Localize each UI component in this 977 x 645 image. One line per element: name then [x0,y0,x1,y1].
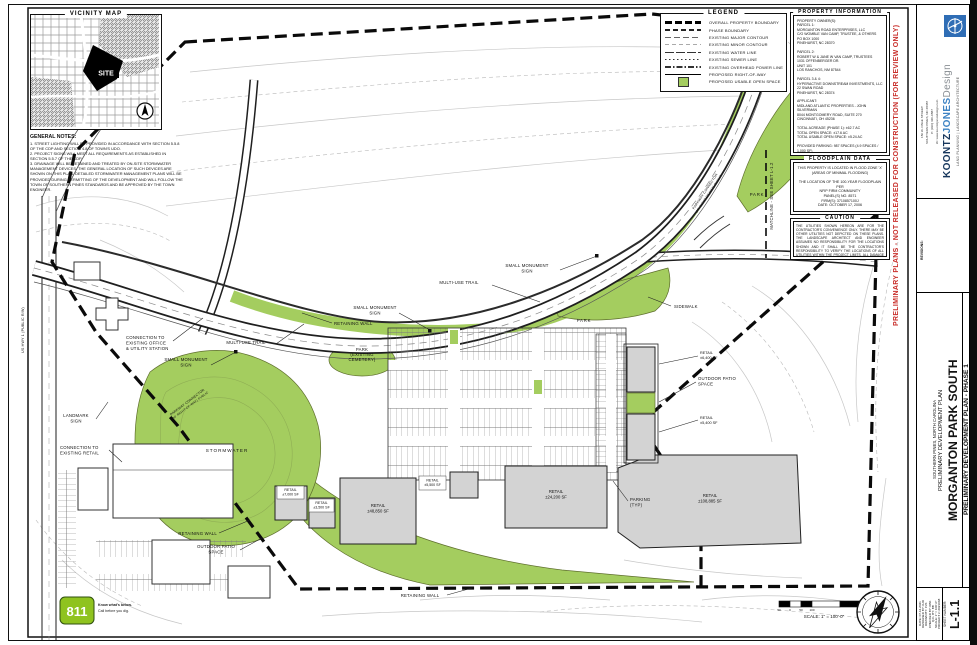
legend-title: LEGEND [703,10,744,17]
plan-sheet: SMALL MONUMENTSIGN SMALL MONUMENTSIGN SM… [0,0,977,645]
outdoor-patio-area [627,393,655,413]
label-us1: US HWY 1 (PUBLIC R/W) [21,307,25,353]
info-project-number: PROJECT #: 2021068 [937,590,940,638]
vicinity-site-label: SITE [98,71,114,78]
legend-swatch-phase-boundary [665,29,705,31]
firm-address-4: W: www.koontzjonesdesign.com [935,51,940,193]
general-notes-body: 1. STREET LIGHTING WILL BE PROVIDED IN A… [30,141,184,192]
label-retaining-wall-2: RETAINING WALL [178,531,217,536]
existing-parking-west [58,470,76,588]
call-811-line1: Know what's below. [98,603,132,607]
floodplain-panel: FLOODPLAIN DATA THIS PROPERTY IS LOCATED… [790,159,890,215]
building-retail-6400 [627,347,655,392]
general-notes-title: GENERAL NOTES: [30,134,184,140]
label-stormwater: STORMWATER [206,448,249,453]
label-connection-retail: CONNECTION TOEXISTING RETAIL [60,445,99,456]
title-block: KOONTZJONESDesign LAND PLANNING | LANDSC… [916,4,970,641]
floodplain-body: THIS PROPERTY IS LOCATED IN FLOOD ZONE '… [797,166,883,208]
label-multi-use-trail-2: MULTI-USE TRAIL [226,340,266,345]
preliminary-warning-text: PRELIMINARY PLANS - NOT RELEASED FOR CON… [893,8,905,342]
caution-body: THE UTILITIES SHOWN HEREON ARE FOR THE C… [796,224,884,257]
label-park-1: PARK [577,318,592,323]
north-arrow-compass [857,591,899,633]
project-name: MORGANTON PARK SOUTH [946,297,960,583]
call-811-line2: Call before you dig. [98,609,129,613]
svg-text:100: 100 [809,608,814,612]
label-matchline: MATCHLINE - SEE SHEET L-1.2 [769,162,774,230]
vicinity-north-arrow-icon [137,103,153,119]
vicinity-map-graphic: SITE [31,15,159,127]
legend-swatch-major-contour [665,37,705,38]
legend-swatch-property-boundary [665,21,705,24]
property-info-body: PROPERTY OWNER(S): PARCEL 1: MORGANTON R… [797,19,883,153]
legend-swatch-overhead-power [665,66,705,67]
label-sidewalk: SIDEWALK [674,304,698,309]
building-retail-5400 [627,414,655,460]
building-retail-5500 [450,472,478,498]
sheet-number: L-1.1 [948,593,965,635]
call-811-number: 811 [67,604,88,619]
legend-swatch-right-of-way [665,74,705,76]
firm-name: KOONTZJONESDesign [942,47,955,195]
title-block-divider-1 [917,198,969,199]
legend-swatch-open-space [665,77,705,87]
caution-panel: CAUTION THE UTILITIES SHOWN HEREON ARE F… [790,218,890,260]
label-multi-use-trail-1: MULTI-USE TRAIL [439,280,479,285]
sheet-title: PRELIMINARY DEVELOPMENT PLAN - PHASE 1 [963,297,971,583]
title-block-divider-3 [917,587,969,588]
svg-text:50: 50 [777,608,781,612]
legend-panel: LEGEND OVERALL PROPERTY BOUNDARY PHASE B… [660,13,787,92]
svg-text:50: 50 [799,608,803,612]
label-connection-office: CONNECTION TOEXISTING OFFICE& UTILITY ST… [126,335,169,351]
project-subtitle: PRELIMINARY DEVELOPMENT PLAN [938,297,946,583]
scale-label: SCALE: 1" = 100'-0" [804,614,845,619]
legend-swatch-water-line [665,52,705,53]
vicinity-map-title: VICINITY MAP [65,11,127,18]
property-info-panel: PROPERTY INFORMATION PROPERTY OWNER(S): … [790,12,890,156]
general-notes: GENERAL NOTES: 1. STREET LIGHTING WILL B… [30,134,184,192]
firm-tagline: LAND PLANNING | LANDSCAPE ARCHITECTURE [956,51,962,191]
label-retaining-wall-1: RETAINING WALL [334,321,373,326]
label-park-2: PARK [750,192,765,197]
label-retaining-wall-3: RETAINING WALL [401,593,440,598]
legend-swatch-minor-contour [665,44,705,45]
legend-swatch-sewer-line [665,59,705,60]
firm-logo-icon [944,15,966,39]
revisions-label: REVISIONS: [920,226,926,274]
vicinity-map-panel: VICINITY MAP SITE [30,14,162,130]
